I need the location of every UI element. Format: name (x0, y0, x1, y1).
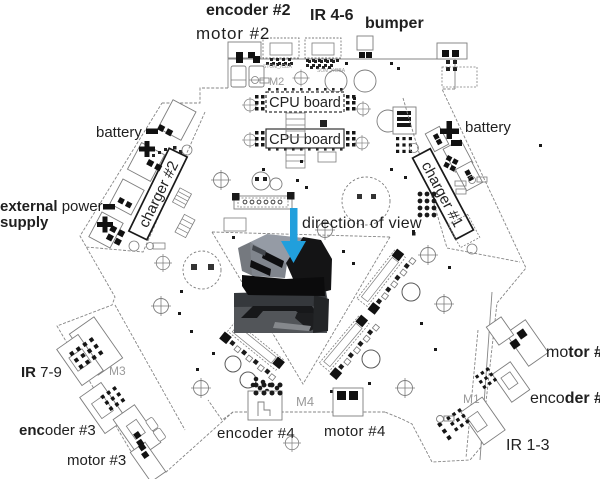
svg-text:M4: M4 (296, 394, 314, 409)
svg-text:M3: M3 (109, 364, 126, 378)
svg-text:SOM_KOBA: SOM_KOBA (317, 68, 346, 74)
svg-text:M1: M1 (463, 392, 480, 406)
svg-text:CPU board: CPU board (269, 95, 341, 111)
svg-text:M2: M2 (269, 76, 284, 88)
svg-text:STOM_/CBA: STOM_/CBA (263, 64, 292, 70)
